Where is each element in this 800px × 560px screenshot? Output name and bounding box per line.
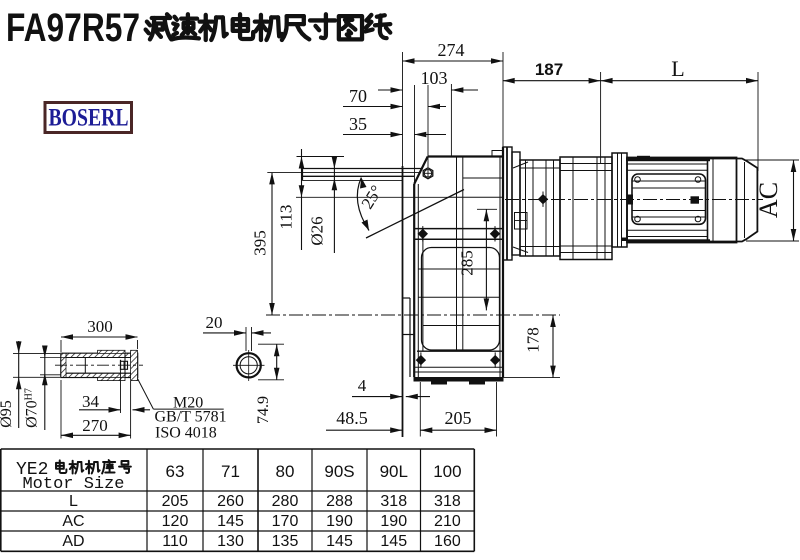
svg-text:160: 160	[434, 533, 461, 550]
svg-text:288: 288	[326, 493, 353, 510]
svg-text:318: 318	[380, 493, 407, 510]
svg-text:35: 35	[349, 114, 367, 134]
svg-text:113: 113	[277, 205, 296, 230]
svg-text:71: 71	[221, 462, 240, 481]
svg-text:205: 205	[445, 408, 472, 428]
svg-text:190: 190	[380, 513, 407, 530]
svg-text:145: 145	[380, 533, 407, 550]
svg-text:34: 34	[82, 392, 100, 411]
svg-text:GB/T 5781: GB/T 5781	[155, 408, 227, 425]
svg-text:90S: 90S	[324, 462, 354, 481]
svg-text:285: 285	[458, 250, 477, 276]
svg-text:260: 260	[217, 493, 244, 510]
svg-text:Motor Size: Motor Size	[22, 475, 124, 494]
svg-text:74.9: 74.9	[255, 396, 272, 424]
svg-text:103: 103	[421, 68, 448, 88]
svg-text:395: 395	[251, 230, 270, 256]
svg-text:170: 170	[272, 513, 299, 530]
svg-text:Ø95: Ø95	[0, 400, 15, 428]
svg-text:205: 205	[162, 493, 189, 510]
svg-text:145: 145	[326, 533, 353, 550]
svg-text:4: 4	[358, 376, 367, 395]
svg-text:274: 274	[438, 40, 465, 60]
svg-text:63: 63	[166, 462, 185, 481]
svg-text:FA97R57: FA97R57	[6, 6, 140, 50]
svg-text:20: 20	[206, 313, 223, 332]
svg-text:318: 318	[434, 493, 461, 510]
svg-text:AC: AC	[62, 513, 84, 530]
svg-text:BOSERL: BOSERL	[49, 105, 129, 132]
svg-text:90L: 90L	[380, 462, 408, 481]
svg-text:L: L	[69, 493, 78, 510]
svg-text:187: 187	[535, 60, 563, 79]
svg-text:L: L	[671, 56, 684, 81]
svg-text:110: 110	[162, 533, 188, 550]
svg-text:Ø26: Ø26	[308, 216, 327, 245]
svg-text:80: 80	[276, 462, 295, 481]
svg-text:145: 145	[217, 513, 244, 530]
svg-text:AD: AD	[62, 533, 84, 550]
svg-text:AC: AC	[754, 182, 783, 218]
svg-text:130: 130	[217, 533, 244, 550]
svg-text:120: 120	[162, 513, 189, 530]
svg-text:48.5: 48.5	[336, 408, 368, 428]
svg-text:70: 70	[349, 86, 367, 106]
svg-text:ISO 4018: ISO 4018	[155, 424, 217, 441]
svg-text:190: 190	[326, 513, 353, 530]
svg-text:135: 135	[272, 533, 299, 550]
svg-text:178: 178	[524, 327, 543, 353]
svg-text:280: 280	[272, 493, 299, 510]
svg-text:300: 300	[87, 317, 113, 336]
svg-text:270: 270	[82, 416, 108, 435]
svg-text:100: 100	[433, 462, 461, 481]
svg-text:210: 210	[434, 513, 461, 530]
